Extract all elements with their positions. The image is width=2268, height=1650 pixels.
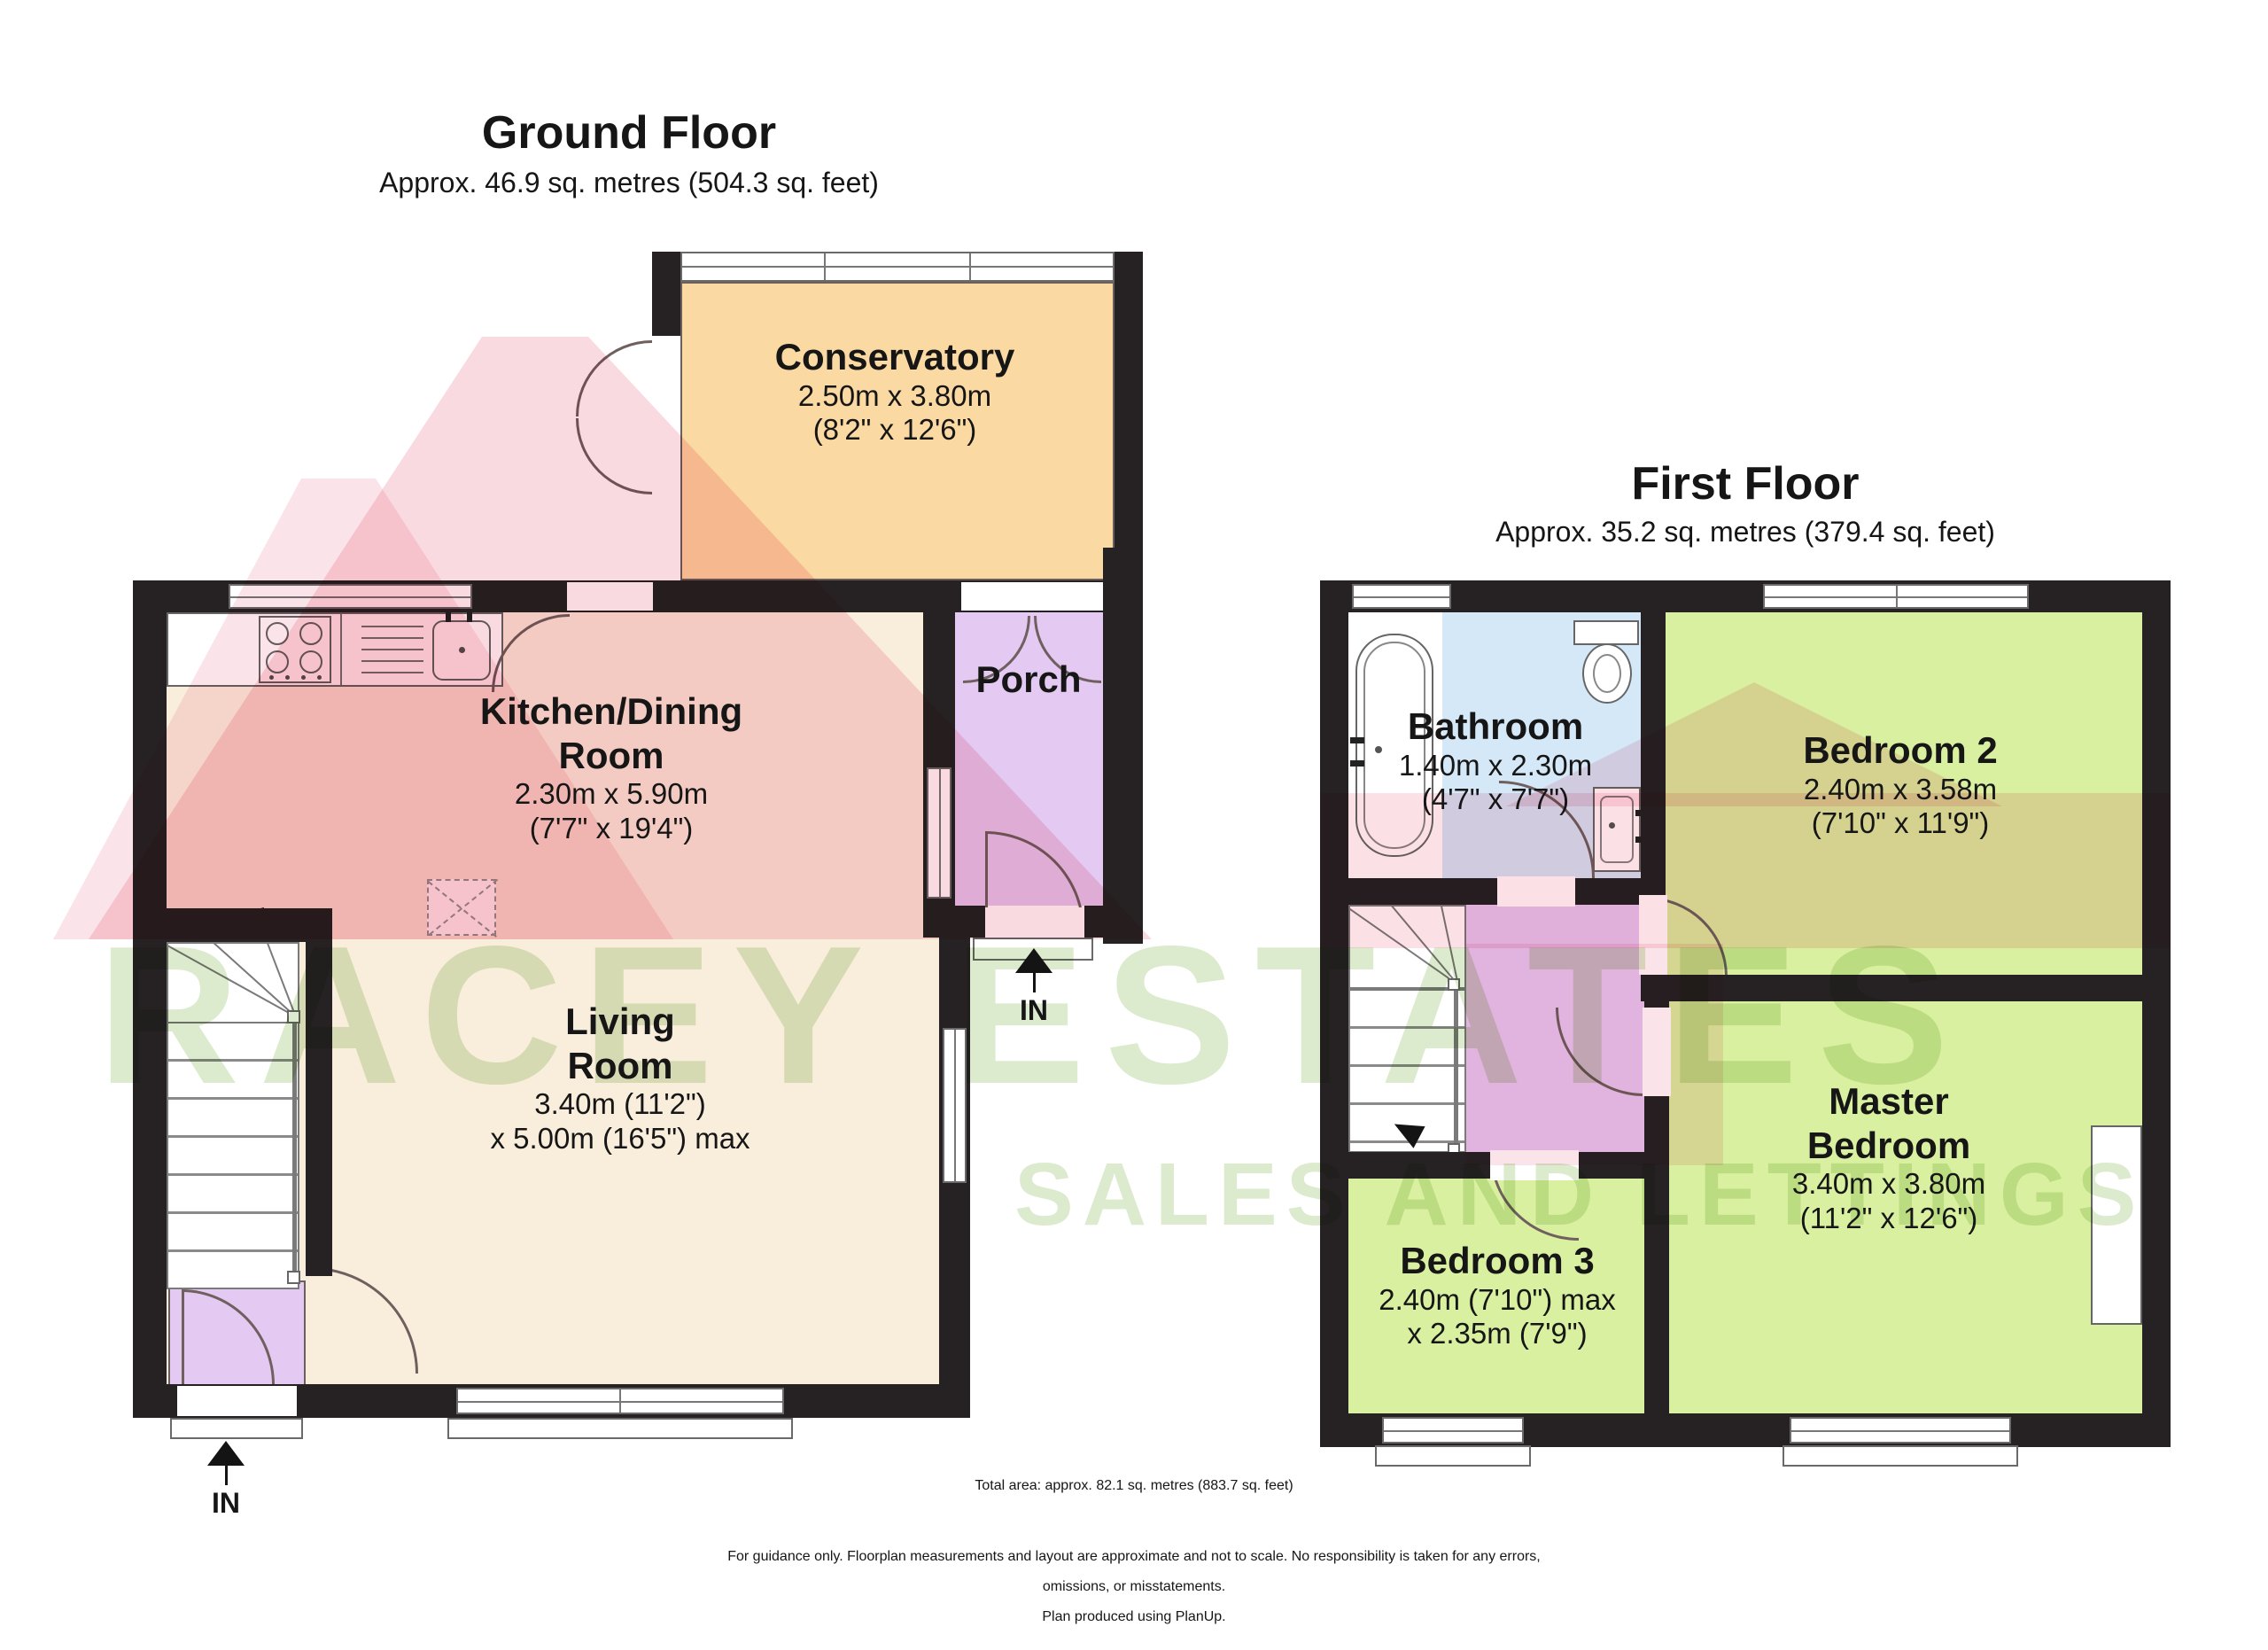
kitchen-label: Kitchen/Dining Room 2.30m x 5.90m (7'7" … [390,689,833,846]
bedroom2-window [1763,584,2029,609]
entrance-label: IN [212,1487,240,1520]
window-sill [1375,1445,1531,1467]
drainer-line [361,626,423,627]
drainer-line [361,649,423,650]
stove-knob [301,675,306,680]
stove-burner [299,650,322,673]
basin-drain [1609,822,1615,829]
door-opening [1497,876,1575,907]
drainer-line [361,672,423,673]
wall [1320,1152,1644,1179]
door-opening [985,907,1084,936]
door-opening [1639,895,1667,975]
entrance-arrow-icon [1015,948,1052,973]
wall [923,906,985,938]
master-window [1790,1417,2011,1444]
living-side-window [943,1028,967,1183]
bedroom3-label: Bedroom 3 2.40m (7'10") max x 2.35m (7'9… [1276,1239,1719,1351]
stove-knob [317,675,322,680]
master-label: Master Bedroom 3.40m x 3.80m (11'2" x 12… [1667,1079,2110,1236]
first-floor-title: First Floor [1391,457,2100,510]
door-opening [177,1386,297,1416]
entrance-arrow-stem [1033,973,1036,992]
stairs-rail-first [1454,985,1458,1148]
stairs-post [1448,978,1460,991]
conservatory-ext-door [576,418,652,494]
living-label: Living Room 3.40m (11'2") x 5.00m (16'5"… [399,1000,842,1156]
ground-floor-subtitle: Approx. 46.9 sq. metres (504.3 sq. feet) [275,167,983,199]
conservatory-window-band [680,252,1115,282]
disclaimer-line2: omissions, or misstatements. [0,1579,2268,1595]
kitchen-porch-window [927,767,951,899]
bedroom2-label: Bedroom 2 2.40m x 3.58m (7'10" x 11'9") [1679,728,2122,841]
floorplan-page: RACEY ESTATES SALES AND LETTINGS Ground … [0,0,2268,1650]
kitchen-window [229,584,472,609]
entrance-marker-porch: IN [994,948,1074,1027]
stairs-post [287,1271,300,1284]
living-rear-window [456,1388,784,1414]
wall [1320,878,1666,905]
wall [1641,975,2171,1001]
wall [652,252,680,336]
wall [2142,580,2171,1447]
wall [133,908,332,942]
wall [1103,548,1143,944]
window-sill [447,1418,793,1439]
disclaimer-line3: Plan produced using PlanUp. [0,1609,2268,1625]
conservatory-ext-door [576,340,652,416]
porch-label: Porch [940,658,1117,702]
drainer-line [361,660,423,662]
sink-drain [459,647,465,653]
door-sill [170,1418,303,1439]
bathroom-window [1352,584,1451,609]
toilet-bowl-inner [1593,654,1621,693]
disclaimer-line1: For guidance only. Floorplan measurement… [0,1549,2268,1565]
entrance-marker-ground: IN [186,1441,266,1520]
stairs-ground [167,1022,299,1289]
stove-burner [299,622,322,645]
entrance-arrow-stem [225,1466,228,1485]
counter-divider [340,614,342,685]
stove-knob [269,675,274,680]
stairs-post [287,1010,300,1023]
wall [133,580,167,1418]
door-opening [1490,1150,1579,1180]
stove-burner [266,650,289,673]
first-floor-subtitle: Approx. 35.2 sq. metres (379.4 sq. feet) [1391,516,2100,549]
toilet-cistern [1573,620,1639,645]
stove-burner [266,622,289,645]
bedroom3-window [1382,1417,1524,1444]
window-sill [1783,1445,2018,1467]
stairs-rail-ground [292,1019,297,1278]
door-opening [567,582,653,611]
bathroom-label: Bathroom 1.40m x 2.30m (4'7" x 7'7") [1318,704,1673,817]
wall [306,908,332,1276]
door-opening [961,582,1103,611]
stove-knob [285,675,290,680]
entrance-label: IN [1020,994,1048,1027]
wall [1084,906,1143,938]
entrance-arrow-icon [207,1441,245,1466]
ground-floor-title: Ground Floor [275,106,983,160]
conservatory-label: Conservatory 2.50m x 3.80m (8'2" x 12'6"… [673,335,1116,448]
drainer-line [361,637,423,639]
total-area: Total area: approx. 82.1 sq. metres (883… [0,1478,2268,1494]
